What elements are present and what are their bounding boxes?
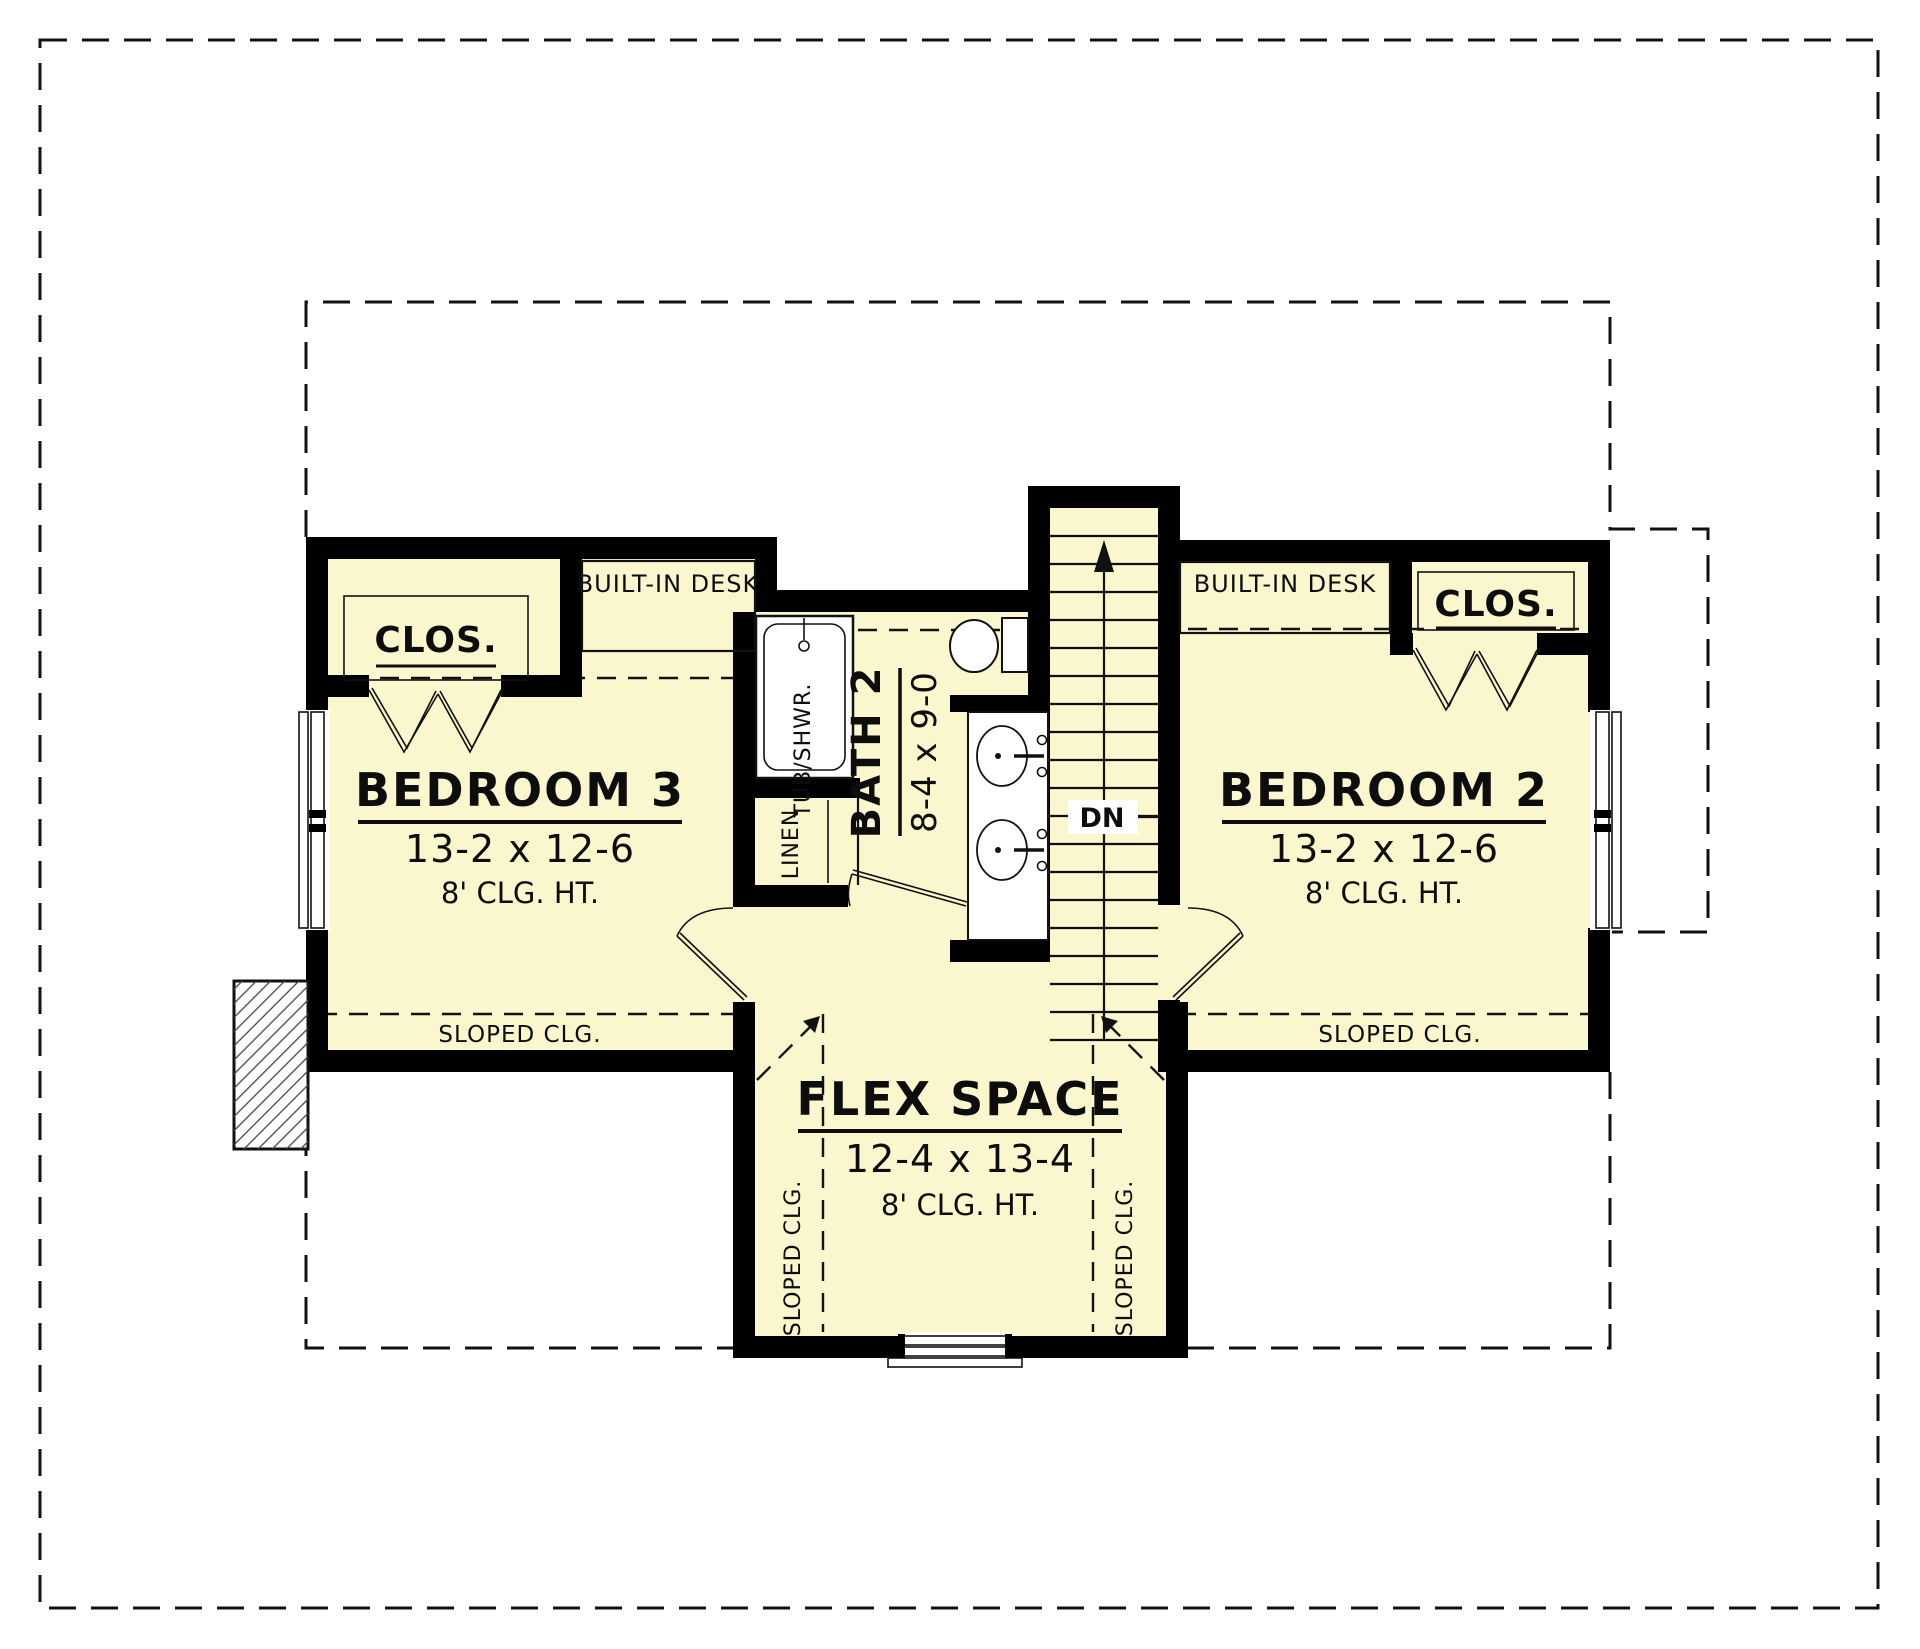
sloped-clg-flex-right: SLOPED CLG. xyxy=(1113,1180,1138,1337)
stairs-down-label: DN xyxy=(1079,803,1124,834)
flex-ceiling: 8' CLG. HT. xyxy=(881,1188,1039,1222)
sloped-clg-flex-left: SLOPED CLG. xyxy=(781,1180,806,1337)
flex-title: FLEX SPACE xyxy=(796,1072,1123,1126)
desk-right-label: BUILT-IN DESK xyxy=(1194,570,1377,598)
window-left xyxy=(296,710,330,930)
flex-dims: 12-4 x 13-4 xyxy=(845,1137,1075,1181)
bedroom2-ceiling: 8' CLG. HT. xyxy=(1305,876,1463,910)
bedroom2-title: BEDROOM 2 xyxy=(1219,763,1549,817)
toilet xyxy=(950,618,1028,672)
bath2-dims: 8-4 x 9-0 xyxy=(905,671,945,833)
closet-left-label: CLOS. xyxy=(374,620,497,661)
sloped-clg-bedroom3: SLOPED CLG. xyxy=(438,1022,601,1048)
bedroom3-dims: 13-2 x 12-6 xyxy=(405,827,635,871)
room-floor-fills xyxy=(306,486,1610,1358)
bath2-title: BATH 2 xyxy=(844,666,890,839)
desk-left-label: BUILT-IN DESK xyxy=(577,570,760,598)
floor-plan-drawing: DN xyxy=(0,0,1920,1649)
floor-plan-page: DN xyxy=(0,0,1920,1649)
chimney xyxy=(234,981,308,1149)
sloped-clg-bedroom2: SLOPED CLG. xyxy=(1318,1022,1481,1048)
window-right xyxy=(1590,710,1624,930)
bedroom3-ceiling: 8' CLG. HT. xyxy=(441,876,599,910)
window-flex xyxy=(888,1332,1022,1367)
linen-label: LINEN xyxy=(779,809,804,880)
closet-right-label: CLOS. xyxy=(1434,584,1557,625)
tub-shower-label: TUB/SHWR. xyxy=(791,683,816,819)
vanity-double-sink xyxy=(968,712,1048,940)
bedroom2-dims: 13-2 x 12-6 xyxy=(1269,827,1499,871)
bedroom3-title: BEDROOM 3 xyxy=(355,763,685,817)
